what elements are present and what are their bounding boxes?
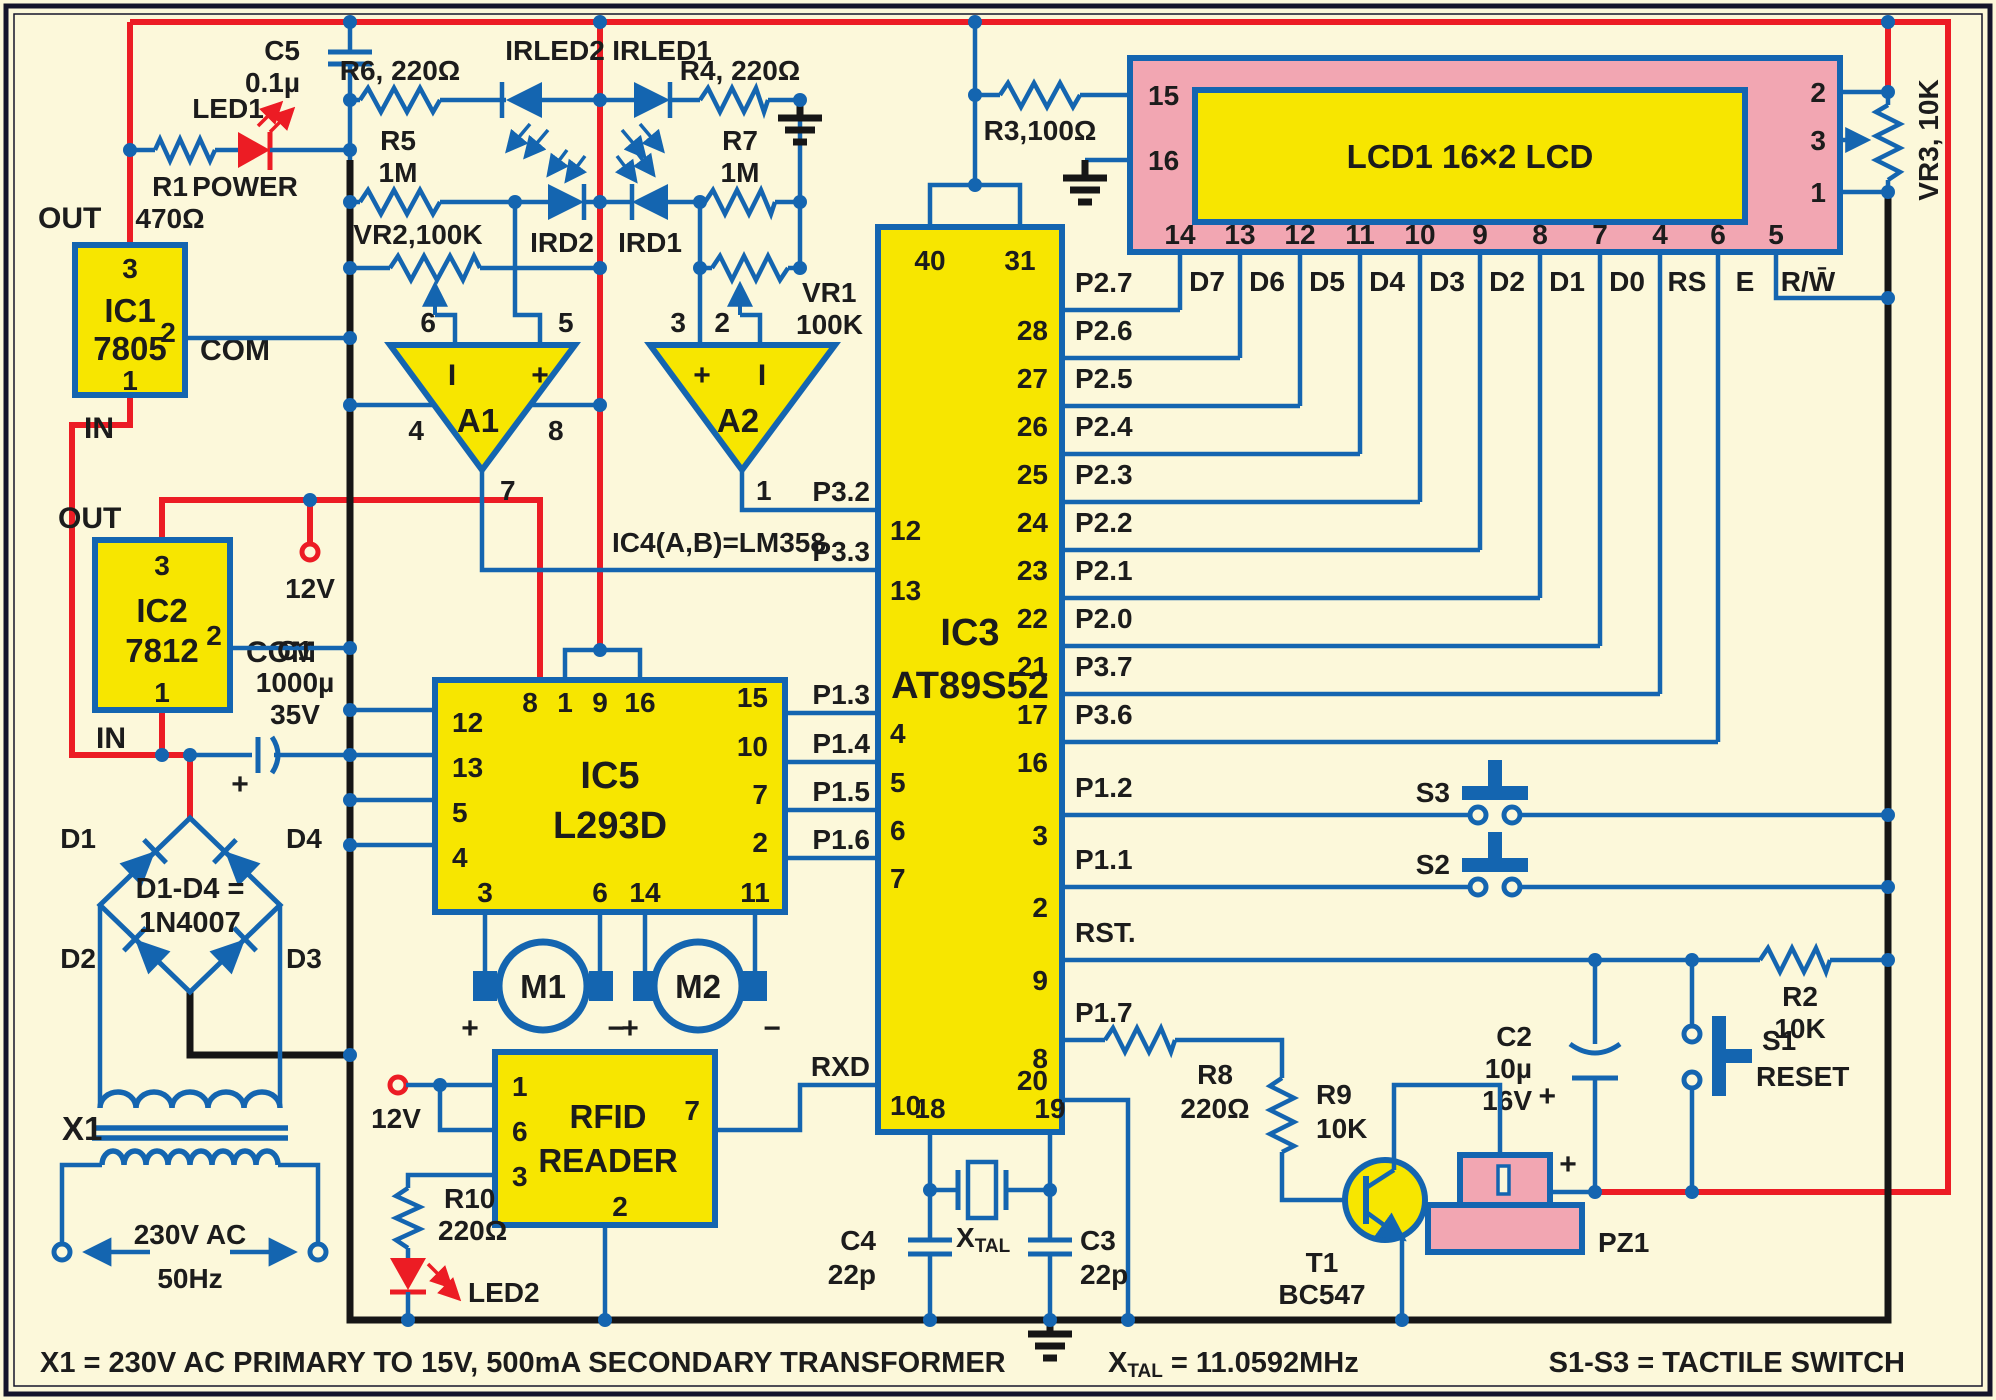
label-led2: LED2 — [468, 1277, 540, 1308]
num-3: 3 — [1032, 820, 1048, 851]
motor-m2: M2 + − — [621, 912, 781, 1045]
label-r9: R9 — [1316, 1079, 1352, 1110]
lcd-pin5: 5 — [1768, 219, 1784, 250]
potentiometer-vr1 — [712, 256, 788, 280]
s1-terminal-bottom — [1684, 1072, 1700, 1088]
ird1-diode — [632, 184, 668, 220]
caption-tactile: S1-S3 = TACTILE SWITCH — [1549, 1347, 1905, 1379]
ic5-pin8: 8 — [522, 687, 538, 718]
label-p2-5: P2.5 — [1075, 363, 1133, 394]
power-led-cluster: LED1 POWER R1 470Ω C5 0.1µ — [130, 22, 372, 234]
label-ic4-note: IC4(A,B)=LM358 — [612, 527, 826, 558]
label-r2: R2 — [1782, 981, 1818, 1012]
resistor-r8 — [1105, 1028, 1175, 1052]
rfid-title-1: RFID — [570, 1098, 647, 1135]
num-7: 7 — [890, 863, 906, 894]
label-d3: D3 — [1429, 266, 1465, 297]
label-t1: T1 — [1306, 1247, 1339, 1278]
lcd-pin16: 16 — [1148, 145, 1179, 176]
caption-transformer: X1 = 230V AC PRIMARY TO 15V, 500mA SECON… — [40, 1347, 1006, 1379]
lcd-pin1: 1 — [1810, 177, 1826, 208]
a1-pin7: 7 — [500, 475, 516, 506]
label-12v: 12V — [285, 573, 335, 604]
label-r5: R5 — [380, 125, 416, 156]
resistor-r7 — [705, 190, 775, 214]
label-irled2: IRLED2 — [505, 35, 605, 66]
m2-minus: − — [763, 1012, 781, 1045]
label-p2-3: P2.3 — [1075, 459, 1133, 490]
label-c5: C5 — [264, 35, 300, 66]
potentiometer-vr2 — [390, 256, 480, 280]
label-r7: R7 — [722, 125, 758, 156]
lcd-title: LCD1 16×2 LCD — [1347, 138, 1594, 175]
label-x1: X1 — [62, 1110, 102, 1147]
rfid-pin2: 2 — [612, 1191, 628, 1222]
num-4: 4 — [890, 718, 906, 749]
label-s2: S2 — [1416, 849, 1450, 880]
ic1-pin1: 1 — [122, 365, 138, 396]
label-p2-0: P2.0 — [1075, 603, 1133, 634]
ic5-pin16: 16 — [624, 687, 655, 718]
resistor-r9 — [1270, 1078, 1294, 1152]
label-c2: C2 — [1496, 1021, 1532, 1052]
label-230v: 230V AC — [134, 1219, 247, 1250]
secondary-coil — [100, 1092, 280, 1108]
label-d2: D2 — [60, 943, 96, 974]
ic5-name: IC5 — [580, 755, 639, 797]
label-s3: S3 — [1416, 777, 1450, 808]
c1-plus: + — [231, 768, 249, 801]
label-r3: R3,100Ω — [984, 115, 1097, 146]
ic5-pin7: 7 — [752, 779, 768, 810]
label-d5: D5 — [1309, 266, 1345, 297]
ic3-name: IC3 — [940, 612, 999, 654]
crystal-xtal — [968, 1162, 996, 1218]
num-28: 28 — [1017, 315, 1048, 346]
ic1-out-label: OUT — [38, 202, 101, 235]
label-vr2: VR2,100K — [353, 219, 482, 250]
num-16: 16 — [1017, 747, 1048, 778]
a2-pin2: 2 — [714, 307, 730, 338]
ic3-pin19: 19 — [1034, 1093, 1065, 1124]
label-p2-7: P2.7 — [1075, 267, 1133, 298]
lcd-pin14: 14 — [1164, 219, 1196, 250]
label-p2-2: P2.2 — [1075, 507, 1133, 538]
rfid-pin3: 3 — [512, 1161, 528, 1192]
ic5-pin5: 5 — [452, 797, 468, 828]
a1-name: A1 — [457, 402, 499, 439]
label-c4-value: 22p — [828, 1259, 876, 1290]
label-d7: D7 — [1189, 266, 1225, 297]
label-50hz: 50Hz — [157, 1263, 222, 1294]
terminal-12v-rfid — [390, 1077, 406, 1093]
label-p3-2: P3.2 — [812, 476, 870, 507]
label-p2-1: P2.1 — [1075, 555, 1133, 586]
ic5-pin9: 9 — [592, 687, 608, 718]
label-vr1: VR1 — [802, 277, 856, 308]
label-p2-4: P2.4 — [1075, 411, 1133, 442]
rfid-pin7: 7 — [684, 1095, 700, 1126]
label-d1: D1 — [60, 823, 96, 854]
terminal-12v — [302, 544, 318, 560]
lcd-pin4: 4 — [1652, 219, 1668, 250]
num-24: 24 — [1017, 507, 1049, 538]
pz1-plus: + — [1559, 1148, 1577, 1181]
caption-xtal-rest: = 11.0592MHz — [1163, 1347, 1359, 1379]
label-r7-value: 1M — [721, 157, 760, 188]
lcd-pin11: 11 — [1345, 219, 1375, 250]
ic1-in-label: IN — [84, 412, 114, 445]
ic2-pin2: 2 — [206, 620, 222, 651]
circuit-schematic: 3 IC1 7805 2 1 OUT COM IN 3 IC2 7812 2 1… — [0, 0, 1996, 1400]
irled2-diode — [506, 82, 542, 118]
label-rw: R/W̄ — [1781, 266, 1836, 297]
label-r10-value: 220Ω — [438, 1215, 507, 1246]
rfid-pin6: 6 — [512, 1116, 528, 1147]
label-c5-value: 0.1µ — [245, 67, 300, 98]
num-9: 9 — [1032, 965, 1048, 996]
label-reset: RESET — [1756, 1061, 1849, 1092]
primary-coil — [102, 1151, 278, 1165]
ic3-pin31: 31 — [1004, 245, 1035, 276]
a1-pin5: 5 — [558, 307, 574, 338]
lcd-data-wires: D7 D6 D5 D4 D3 D2 D1 D0 RS E R/W̄ — [1180, 252, 1888, 742]
caption-xtal-main: X — [1108, 1347, 1128, 1379]
pz1-base — [1428, 1205, 1582, 1252]
label-c2-value2: 16V — [1482, 1085, 1532, 1116]
led1-diode — [238, 132, 270, 168]
lcd-pin2: 2 — [1810, 77, 1826, 108]
motor-m1: M1 + − — [461, 912, 625, 1045]
ic5-pin15: 15 — [737, 682, 768, 713]
label-r9-value: 10K — [1316, 1113, 1367, 1144]
label-p3-3: P3.3 — [812, 536, 870, 567]
s1-terminal-top — [1684, 1026, 1700, 1042]
a1-pin8: 8 — [548, 415, 564, 446]
c2-plus: + — [1538, 1080, 1556, 1113]
num-13: 13 — [890, 575, 921, 606]
num-27: 27 — [1017, 363, 1048, 394]
ic2-out-label: OUT — [58, 502, 121, 535]
label-c4: C4 — [840, 1225, 876, 1256]
buzzer-cluster: R8 220Ω R9 10K T1 BC547 + PZ1 — [1105, 1028, 1649, 1320]
a2-pin3: 3 — [670, 307, 686, 338]
label-d2: D2 — [1489, 266, 1525, 297]
num-10: 10 — [890, 1090, 921, 1121]
label-r8-value: 220Ω — [1180, 1093, 1249, 1124]
label-d4: D4 — [1369, 266, 1405, 297]
resistor-r5 — [360, 190, 440, 214]
ac-terminal-left — [54, 1244, 70, 1260]
xtal-sub: TAL — [975, 1236, 1011, 1257]
label-p1-7: P1.7 — [1075, 997, 1133, 1028]
m1-plus: + — [461, 1012, 479, 1045]
num-22: 22 — [1017, 603, 1048, 634]
label-r1: R1 — [152, 171, 188, 202]
label-d0: D0 — [1609, 266, 1645, 297]
ic2-name: IC2 — [136, 592, 187, 629]
ic2-pin3: 3 — [154, 550, 170, 581]
a1-pin4: 4 — [408, 415, 424, 446]
num-25: 25 — [1017, 459, 1048, 490]
label-p2-6: P2.6 — [1075, 315, 1133, 346]
label-d6: D6 — [1249, 266, 1285, 297]
m1-label: M1 — [520, 968, 566, 1005]
label-p1-4: P1.4 — [812, 728, 870, 759]
led2-diode — [390, 1258, 426, 1290]
label-vr1-value: 100K — [796, 309, 863, 340]
label-c3-value: 22p — [1080, 1259, 1128, 1290]
label-c2-value1: 10µ — [1485, 1053, 1532, 1084]
resistor-r1 — [155, 139, 215, 161]
lcd-pin10: 10 — [1404, 219, 1435, 250]
ic1-pin2: 2 — [160, 317, 176, 348]
label-r4: R4, 220Ω — [680, 55, 801, 86]
ic5-pin6: 6 — [592, 877, 608, 908]
m2-label: M2 — [675, 968, 721, 1005]
label-power: POWER — [192, 171, 298, 202]
ic5-pin13: 13 — [452, 752, 483, 783]
num-6: 6 — [890, 815, 906, 846]
label-c3: C3 — [1080, 1225, 1116, 1256]
label-vr3: VR3, 10K — [1913, 79, 1944, 200]
rfid-pin1: 1 — [512, 1071, 528, 1102]
lcd-pin8: 8 — [1532, 219, 1548, 250]
lcd-pin3: 3 — [1810, 125, 1826, 156]
a1-plus-mark: + — [531, 359, 549, 392]
capacitor-c4 — [908, 1240, 952, 1254]
rfid-reader: RFID READER 1 6 3 7 2 12V R10 220Ω LED2 — [371, 1052, 878, 1320]
ic5-pin11: 11 — [740, 877, 770, 908]
xtal-main: X — [956, 1222, 975, 1253]
ic5-pin1: 1 — [557, 687, 573, 718]
lcd-module: LCD1 16×2 LCD 15 16 2 3 1 14 13 12 11 10… — [1130, 58, 1840, 252]
num-8: 8 — [1032, 1043, 1048, 1074]
ic2-pin1: 1 — [154, 677, 170, 708]
label-p1-3: P1.3 — [812, 679, 870, 710]
label-c1-value1: 1000µ — [256, 667, 334, 698]
ic5-pin12: 12 — [452, 707, 483, 738]
ic1-7805: 3 IC1 7805 2 1 OUT COM IN — [38, 202, 350, 445]
label-d1: D1 — [1549, 266, 1585, 297]
num-21: 21 — [1017, 651, 1048, 682]
lcd-pin6: 6 — [1710, 219, 1726, 250]
resistor-r10 — [396, 1188, 420, 1248]
label-r5-value: 1M — [379, 157, 418, 188]
num-17: 17 — [1017, 699, 1048, 730]
irled1-diode — [634, 82, 670, 118]
label-d3: D3 — [286, 943, 322, 974]
ic1-name: IC1 — [104, 292, 155, 329]
label-12v-rfid: 12V — [371, 1103, 421, 1134]
ic5-pin14: 14 — [629, 877, 661, 908]
label-d4: D4 — [286, 823, 322, 854]
label-r1-value: 470Ω — [135, 203, 204, 234]
label-r6: R6, 220Ω — [340, 55, 461, 86]
label-r8: R8 — [1197, 1059, 1233, 1090]
label-p1-5: P1.5 — [812, 776, 870, 807]
label-p1-1: P1.1 — [1075, 844, 1133, 875]
label-c1: C1 — [277, 635, 313, 666]
ic5-l293d: 8 1 9 16 IC5 L293D 12 13 5 4 15 10 7 2 3… — [350, 650, 878, 912]
label-ird2: IRD2 — [530, 227, 594, 258]
ground-symbol-lcd16 — [1063, 160, 1107, 202]
caption-xtal-sub: TAL — [1127, 1361, 1163, 1382]
label-rxd: RXD — [811, 1051, 870, 1082]
ic5-pin2: 2 — [752, 827, 768, 858]
label-s1: S1 — [1762, 1025, 1796, 1056]
label-pz1: PZ1 — [1598, 1227, 1649, 1258]
ic5-pin10: 10 — [737, 731, 768, 762]
label-r10: R10 — [444, 1183, 495, 1214]
label-ird1: IRD1 — [618, 227, 682, 258]
label-p1-2: P1.2 — [1075, 772, 1133, 803]
ic5-pin3: 3 — [477, 877, 493, 908]
a2-pin1: 1 — [756, 475, 772, 506]
ic5-part: L293D — [553, 805, 667, 847]
label-rs: RS — [1668, 266, 1707, 297]
a2-name: A2 — [717, 402, 759, 439]
a2-inv-mark: I — [758, 359, 766, 392]
label-bc547: BC547 — [1278, 1279, 1365, 1310]
ird2-diode — [548, 184, 584, 220]
a1-inv-mark: I — [448, 359, 456, 392]
resistor-r4 — [700, 88, 768, 112]
caption-xtal: XTAL = 11.0592MHz — [1108, 1347, 1359, 1382]
label-c1-value2: 35V — [270, 699, 320, 730]
label-bridge-2: 1N4007 — [139, 907, 241, 939]
label-e: E — [1736, 266, 1755, 297]
potentiometer-vr3 — [1876, 105, 1900, 180]
lcd-pin13: 13 — [1224, 219, 1255, 250]
rfid-title-2: READER — [538, 1142, 678, 1179]
num-5: 5 — [890, 767, 906, 798]
label-xtal: XTAL — [956, 1222, 1011, 1257]
num-23: 23 — [1017, 555, 1048, 586]
capacitor-c3 — [1028, 1240, 1072, 1254]
num-12: 12 — [890, 515, 921, 546]
num-2: 2 — [1032, 892, 1048, 923]
ic2-in-label: IN — [96, 722, 126, 755]
transformer-core — [92, 1128, 288, 1138]
resistor-r3 — [1000, 83, 1080, 107]
a2-plus-mark: + — [693, 359, 711, 392]
ic1-pin3: 3 — [122, 253, 138, 284]
pz1-slot — [1498, 1166, 1509, 1194]
label-bridge-1: D1-D4 = — [136, 873, 245, 905]
m2-plus: + — [621, 1012, 639, 1045]
ic5-pin4: 4 — [452, 842, 468, 873]
ic2-part: 7812 — [125, 632, 198, 669]
ic3-pin40: 40 — [914, 245, 945, 276]
ic1-part: 7805 — [93, 330, 166, 367]
ac-terminal-right — [310, 1244, 326, 1260]
label-p3-7: P3.7 — [1075, 651, 1133, 682]
lcd-pin7: 7 — [1592, 219, 1608, 250]
label-rst: RST. — [1075, 917, 1136, 948]
crystal-cluster: C4 22p C3 22p XTAL — [828, 1132, 1129, 1358]
schematic-canvas: 3 IC1 7805 2 1 OUT COM IN 3 IC2 7812 2 1… — [0, 0, 1996, 1400]
resistor-r6 — [360, 88, 440, 112]
num-26: 26 — [1017, 411, 1048, 442]
label-p3-6: P3.6 — [1075, 699, 1133, 730]
resistor-r2 — [1760, 948, 1830, 972]
label-p1-6: P1.6 — [812, 824, 870, 855]
lcd-pin12: 12 — [1284, 219, 1315, 250]
lcd-pin9: 9 — [1472, 219, 1488, 250]
lcd-pin15: 15 — [1148, 80, 1179, 111]
a1-pin6: 6 — [420, 307, 436, 338]
